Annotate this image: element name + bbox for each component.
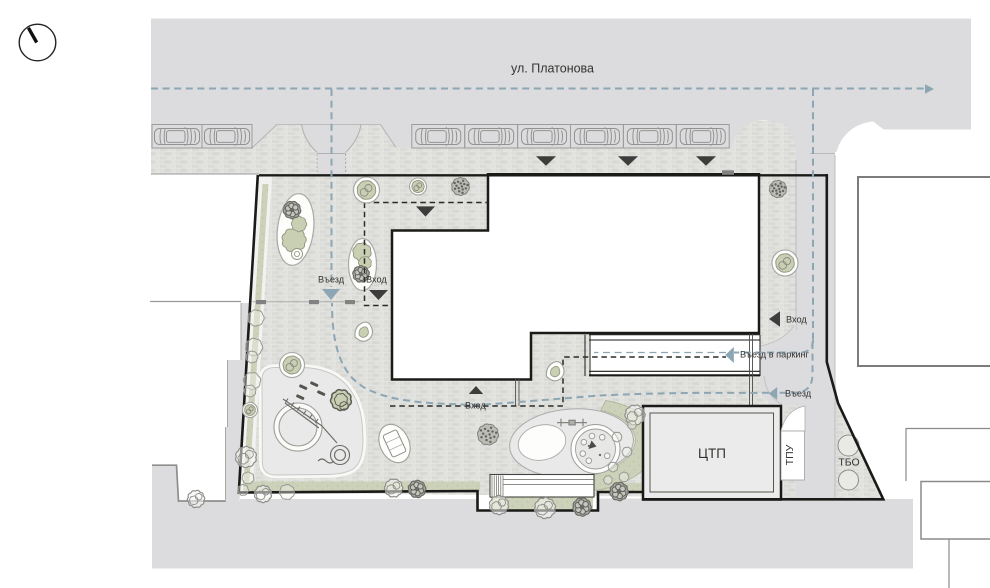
svg-text:Вход: Вход [465, 401, 486, 411]
svg-text:ЦТП: ЦТП [698, 446, 726, 461]
svg-text:Въезд: Въезд [318, 275, 345, 285]
svg-text:Въезд в паркинг: Въезд в паркинг [740, 350, 810, 360]
svg-text:Вход: Вход [366, 275, 387, 285]
svg-text:ул. Платонова: ул. Платонова [511, 62, 594, 76]
svg-text:Въезд: Въезд [785, 389, 812, 399]
svg-text:ТПУ: ТПУ [784, 444, 796, 465]
svg-text:Вход: Вход [786, 315, 807, 325]
svg-text:ТБО: ТБО [838, 457, 859, 469]
